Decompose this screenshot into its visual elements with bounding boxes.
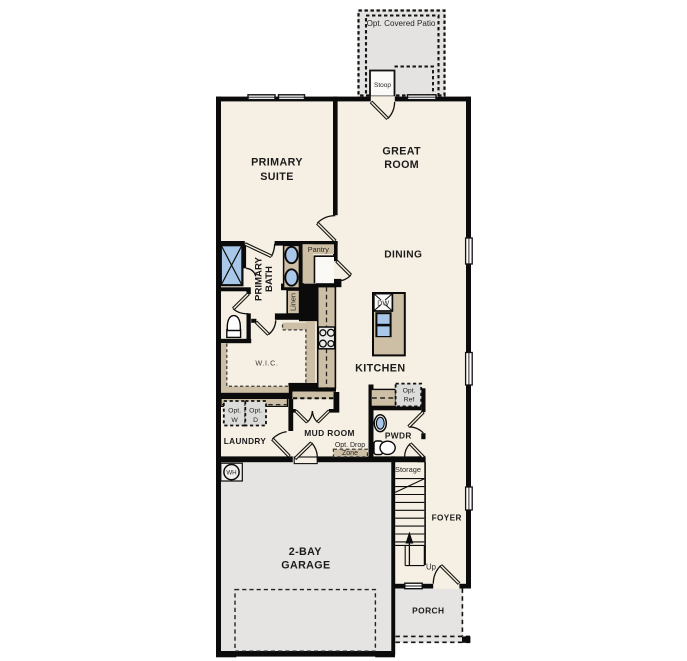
svg-text:KITCHEN: KITCHEN xyxy=(355,363,405,375)
svg-text:WH: WH xyxy=(226,469,236,476)
svg-text:PRIMARY: PRIMARY xyxy=(251,157,303,169)
svg-text:GARAGE: GARAGE xyxy=(281,559,330,571)
svg-text:Pantry: Pantry xyxy=(308,245,329,254)
svg-text:LAUNDRY: LAUNDRY xyxy=(224,437,267,446)
svg-text:MUD ROOM: MUD ROOM xyxy=(304,428,355,438)
svg-text:Opt.: Opt. xyxy=(228,407,241,414)
svg-text:2-BAY: 2-BAY xyxy=(289,546,322,558)
svg-text:PWDR: PWDR xyxy=(385,430,412,440)
svg-text:Stoop: Stoop xyxy=(374,82,391,89)
svg-text:DINING: DINING xyxy=(384,249,422,260)
svg-text:W.I.C.: W.I.C. xyxy=(255,358,278,367)
svg-text:SUITE: SUITE xyxy=(260,171,293,183)
svg-text:Opt.: Opt. xyxy=(403,388,416,395)
svg-text:Opt. Drop: Opt. Drop xyxy=(335,442,365,449)
svg-text:PRIMARY: PRIMARY xyxy=(254,256,265,300)
svg-text:Zone: Zone xyxy=(342,450,358,457)
svg-text:FOYER: FOYER xyxy=(432,513,462,522)
svg-text:Linen: Linen xyxy=(289,293,298,311)
svg-text:DW: DW xyxy=(377,299,389,308)
svg-text:Storage: Storage xyxy=(395,465,421,474)
svg-text:PORCH: PORCH xyxy=(412,606,444,616)
svg-text:ROOM: ROOM xyxy=(384,159,419,171)
svg-text:BATH: BATH xyxy=(264,266,275,292)
svg-text:GREAT: GREAT xyxy=(382,146,421,158)
svg-text:D: D xyxy=(253,417,258,424)
svg-text:Opt.: Opt. xyxy=(249,407,262,414)
svg-text:Up: Up xyxy=(426,563,437,572)
svg-text:Opt. Covered Patio: Opt. Covered Patio xyxy=(367,19,436,28)
svg-text:Ref: Ref xyxy=(404,397,415,404)
svg-text:W: W xyxy=(231,417,238,424)
